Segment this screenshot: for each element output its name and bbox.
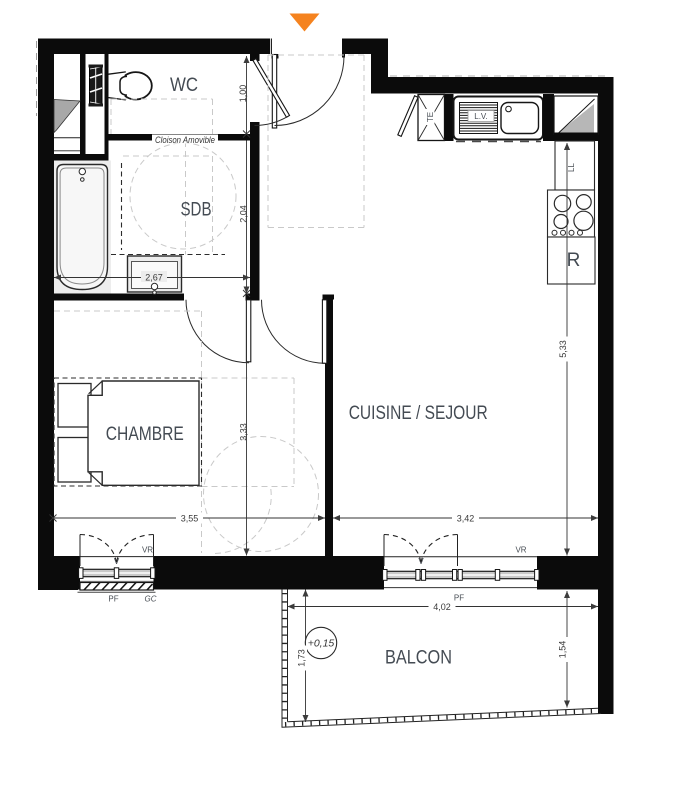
svg-text:4,02: 4,02 [433, 602, 451, 612]
svg-text:L.V.: L.V. [474, 112, 488, 121]
svg-text:1,54: 1,54 [558, 641, 568, 659]
svg-text:VR: VR [515, 546, 526, 555]
svg-text:V: V [114, 557, 120, 566]
svg-text:V: V [418, 557, 424, 566]
svg-text:VR: VR [142, 546, 153, 555]
svg-text:R: R [567, 250, 581, 271]
svg-text:3,33: 3,33 [239, 423, 249, 441]
svg-text:PF: PF [454, 594, 464, 603]
svg-text:WC: WC [170, 75, 198, 96]
svg-text:1,00: 1,00 [238, 85, 248, 103]
svg-text:SDB: SDB [181, 200, 212, 221]
svg-text:1,73: 1,73 [297, 649, 307, 667]
svg-text:Cloison Amovible: Cloison Amovible [155, 135, 215, 145]
svg-text:3,42: 3,42 [457, 514, 475, 524]
svg-text:TE: TE [426, 112, 435, 122]
svg-text:LL: LL [567, 163, 576, 172]
svg-text:PF: PF [108, 595, 118, 604]
svg-text:CUISINE / SEJOUR: CUISINE / SEJOUR [349, 403, 488, 424]
svg-text:3,55: 3,55 [181, 514, 199, 524]
svg-text:CHAMBRE: CHAMBRE [106, 424, 184, 445]
svg-text:+0,15: +0,15 [308, 638, 335, 650]
svg-text:2,67: 2,67 [145, 273, 163, 283]
svg-text:BALCON: BALCON [385, 648, 452, 669]
svg-text:2,04: 2,04 [239, 205, 249, 223]
svg-text:5,33: 5,33 [558, 340, 568, 358]
svg-text:GC: GC [145, 595, 157, 604]
